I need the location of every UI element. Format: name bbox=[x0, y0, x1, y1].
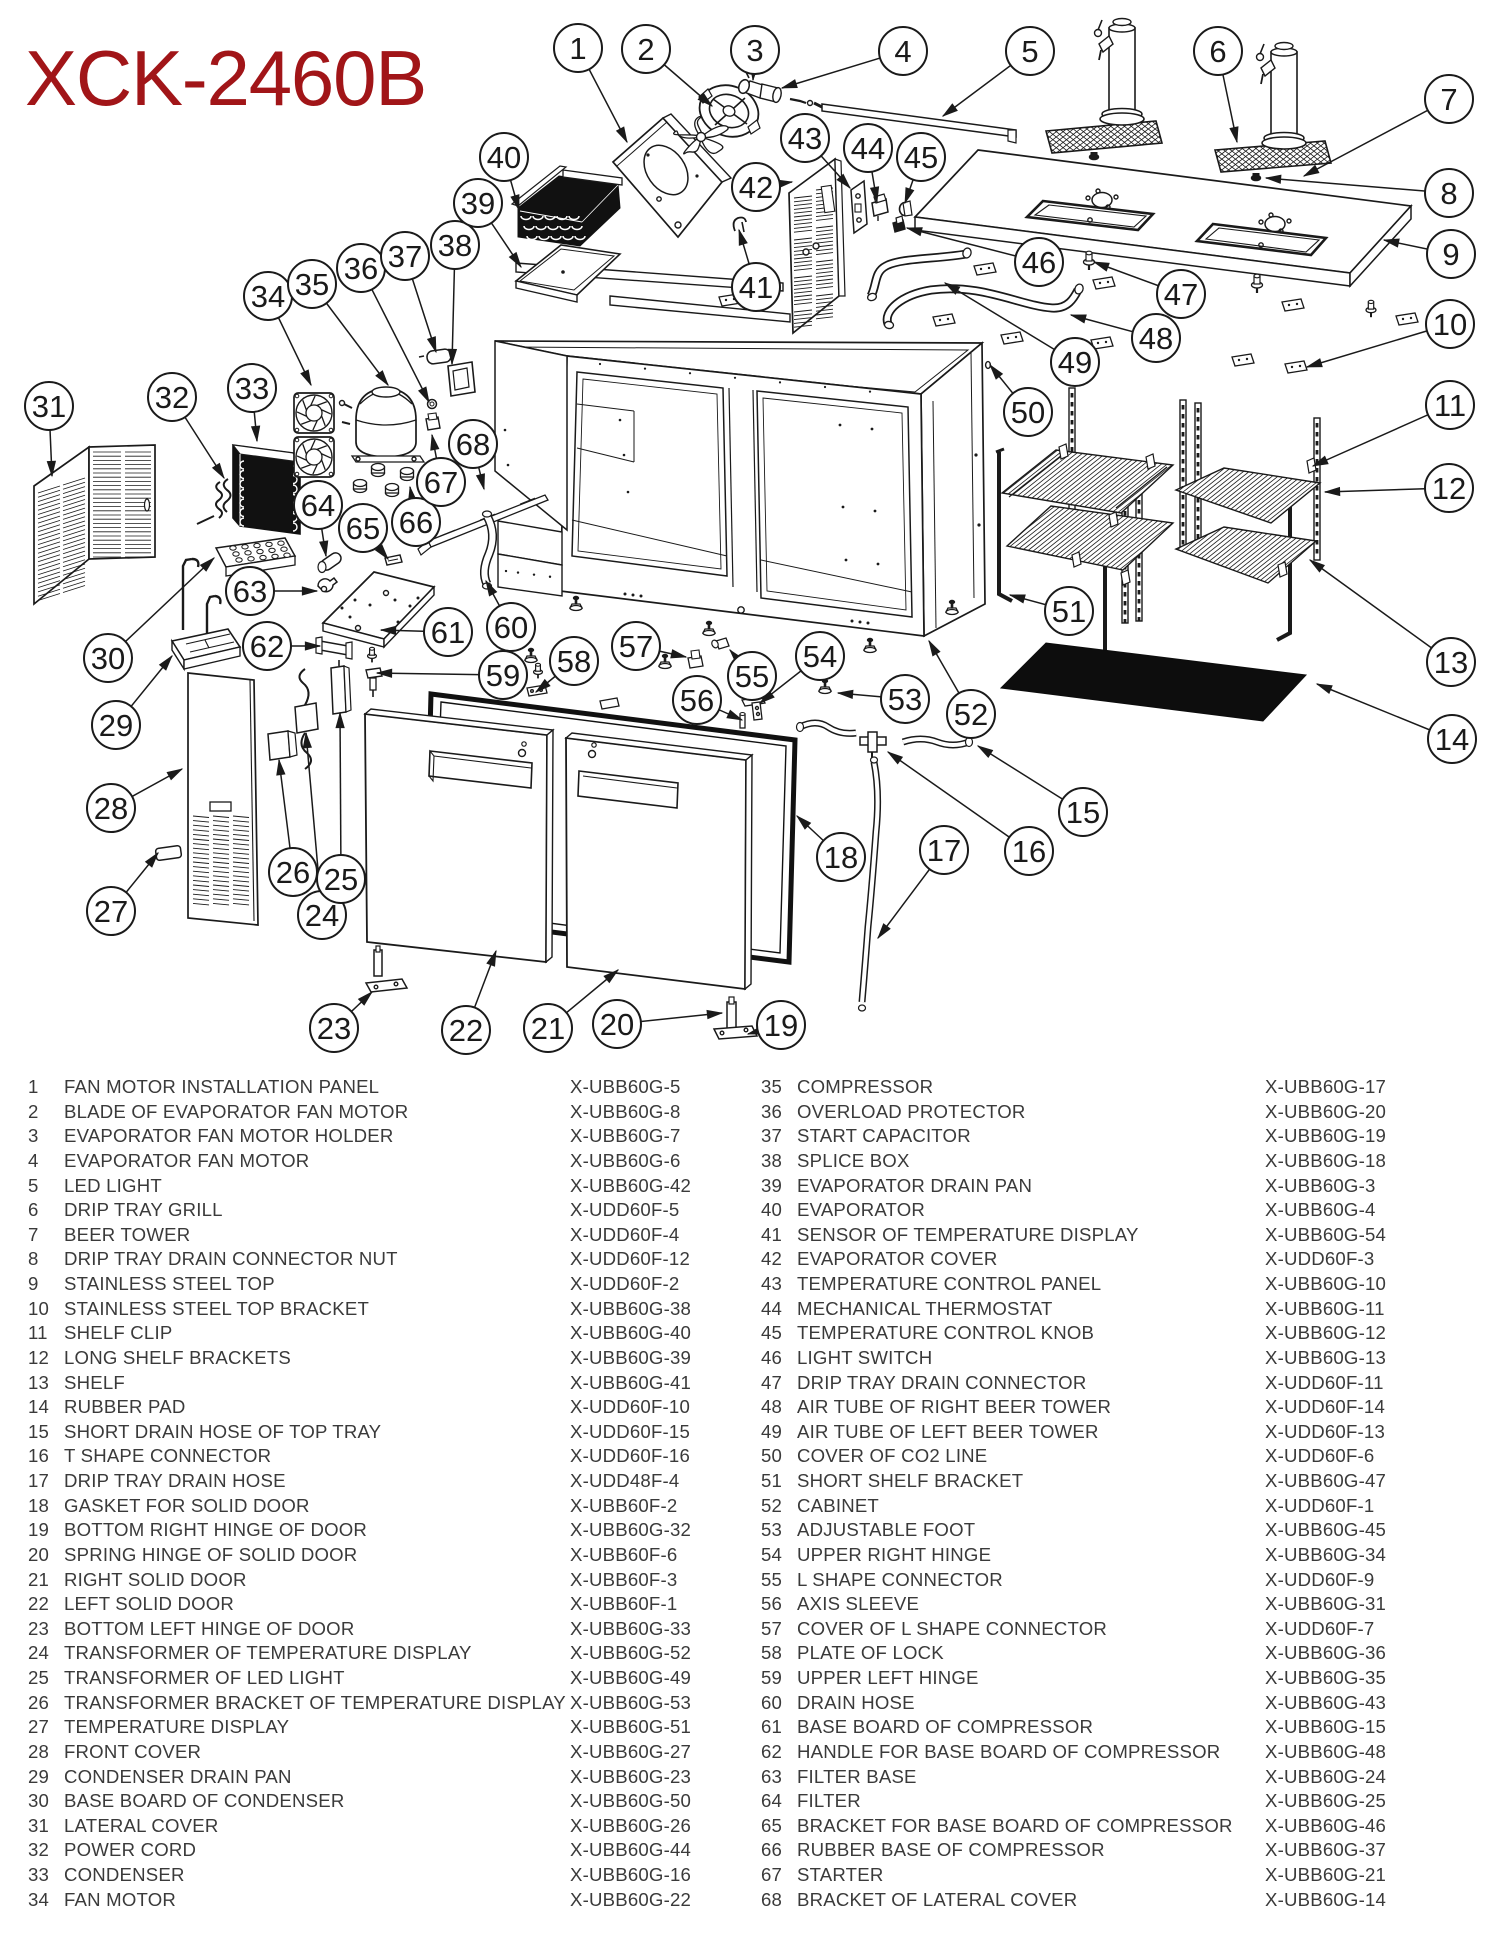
svg-text:20: 20 bbox=[600, 1007, 634, 1042]
svg-text:2: 2 bbox=[637, 32, 654, 67]
svg-text:52: 52 bbox=[954, 697, 988, 732]
svg-text:30: 30 bbox=[91, 641, 125, 676]
svg-text:21: 21 bbox=[531, 1011, 565, 1046]
svg-text:41: 41 bbox=[739, 270, 773, 305]
svg-text:47: 47 bbox=[1164, 277, 1198, 312]
svg-text:68: 68 bbox=[456, 427, 490, 462]
svg-text:40: 40 bbox=[487, 140, 521, 175]
svg-text:34: 34 bbox=[251, 279, 285, 314]
svg-text:46: 46 bbox=[1022, 245, 1056, 280]
svg-text:31: 31 bbox=[32, 389, 66, 424]
svg-text:22: 22 bbox=[449, 1013, 483, 1048]
svg-text:14: 14 bbox=[1435, 722, 1469, 757]
svg-text:63: 63 bbox=[233, 574, 267, 609]
svg-text:44: 44 bbox=[851, 131, 885, 166]
svg-text:1: 1 bbox=[569, 31, 586, 66]
svg-text:61: 61 bbox=[431, 615, 465, 650]
svg-text:55: 55 bbox=[735, 659, 769, 694]
svg-text:64: 64 bbox=[301, 488, 335, 523]
svg-text:27: 27 bbox=[94, 894, 128, 929]
svg-text:23: 23 bbox=[317, 1011, 351, 1046]
svg-text:57: 57 bbox=[619, 629, 653, 664]
svg-text:42: 42 bbox=[739, 170, 773, 205]
svg-text:25: 25 bbox=[324, 862, 358, 897]
svg-text:32: 32 bbox=[155, 380, 189, 415]
svg-text:35: 35 bbox=[295, 267, 329, 302]
svg-text:65: 65 bbox=[346, 511, 380, 546]
svg-text:54: 54 bbox=[803, 639, 837, 674]
svg-text:45: 45 bbox=[904, 140, 938, 175]
svg-text:66: 66 bbox=[399, 505, 433, 540]
svg-text:9: 9 bbox=[1442, 237, 1459, 272]
svg-text:10: 10 bbox=[1433, 307, 1467, 342]
svg-text:49: 49 bbox=[1058, 345, 1092, 380]
svg-text:18: 18 bbox=[824, 840, 858, 875]
svg-text:43: 43 bbox=[788, 121, 822, 156]
svg-text:39: 39 bbox=[461, 186, 495, 221]
svg-text:5: 5 bbox=[1021, 34, 1038, 69]
svg-text:26: 26 bbox=[276, 855, 310, 890]
svg-text:13: 13 bbox=[1434, 645, 1468, 680]
svg-text:36: 36 bbox=[344, 251, 378, 286]
svg-text:16: 16 bbox=[1012, 834, 1046, 869]
svg-text:50: 50 bbox=[1011, 395, 1045, 430]
svg-text:28: 28 bbox=[94, 791, 128, 826]
svg-text:37: 37 bbox=[388, 239, 422, 274]
svg-text:24: 24 bbox=[305, 898, 339, 933]
svg-text:4: 4 bbox=[894, 34, 911, 69]
svg-text:33: 33 bbox=[235, 371, 269, 406]
svg-text:53: 53 bbox=[888, 682, 922, 717]
svg-text:11: 11 bbox=[1434, 388, 1466, 423]
svg-text:38: 38 bbox=[438, 228, 472, 263]
svg-text:60: 60 bbox=[494, 610, 528, 645]
svg-text:29: 29 bbox=[99, 708, 133, 743]
svg-text:51: 51 bbox=[1052, 594, 1086, 629]
svg-text:17: 17 bbox=[927, 833, 961, 868]
svg-text:7: 7 bbox=[1440, 82, 1457, 117]
svg-text:3: 3 bbox=[746, 33, 763, 68]
svg-text:12: 12 bbox=[1432, 471, 1466, 506]
svg-text:48: 48 bbox=[1139, 321, 1173, 356]
svg-text:19: 19 bbox=[764, 1008, 798, 1043]
svg-text:58: 58 bbox=[557, 644, 591, 679]
svg-text:15: 15 bbox=[1066, 795, 1100, 830]
svg-text:59: 59 bbox=[486, 658, 520, 693]
svg-text:8: 8 bbox=[1440, 176, 1457, 211]
svg-text:62: 62 bbox=[250, 629, 284, 664]
svg-text:67: 67 bbox=[424, 465, 458, 500]
svg-text:56: 56 bbox=[680, 683, 714, 718]
svg-text:6: 6 bbox=[1209, 34, 1226, 69]
